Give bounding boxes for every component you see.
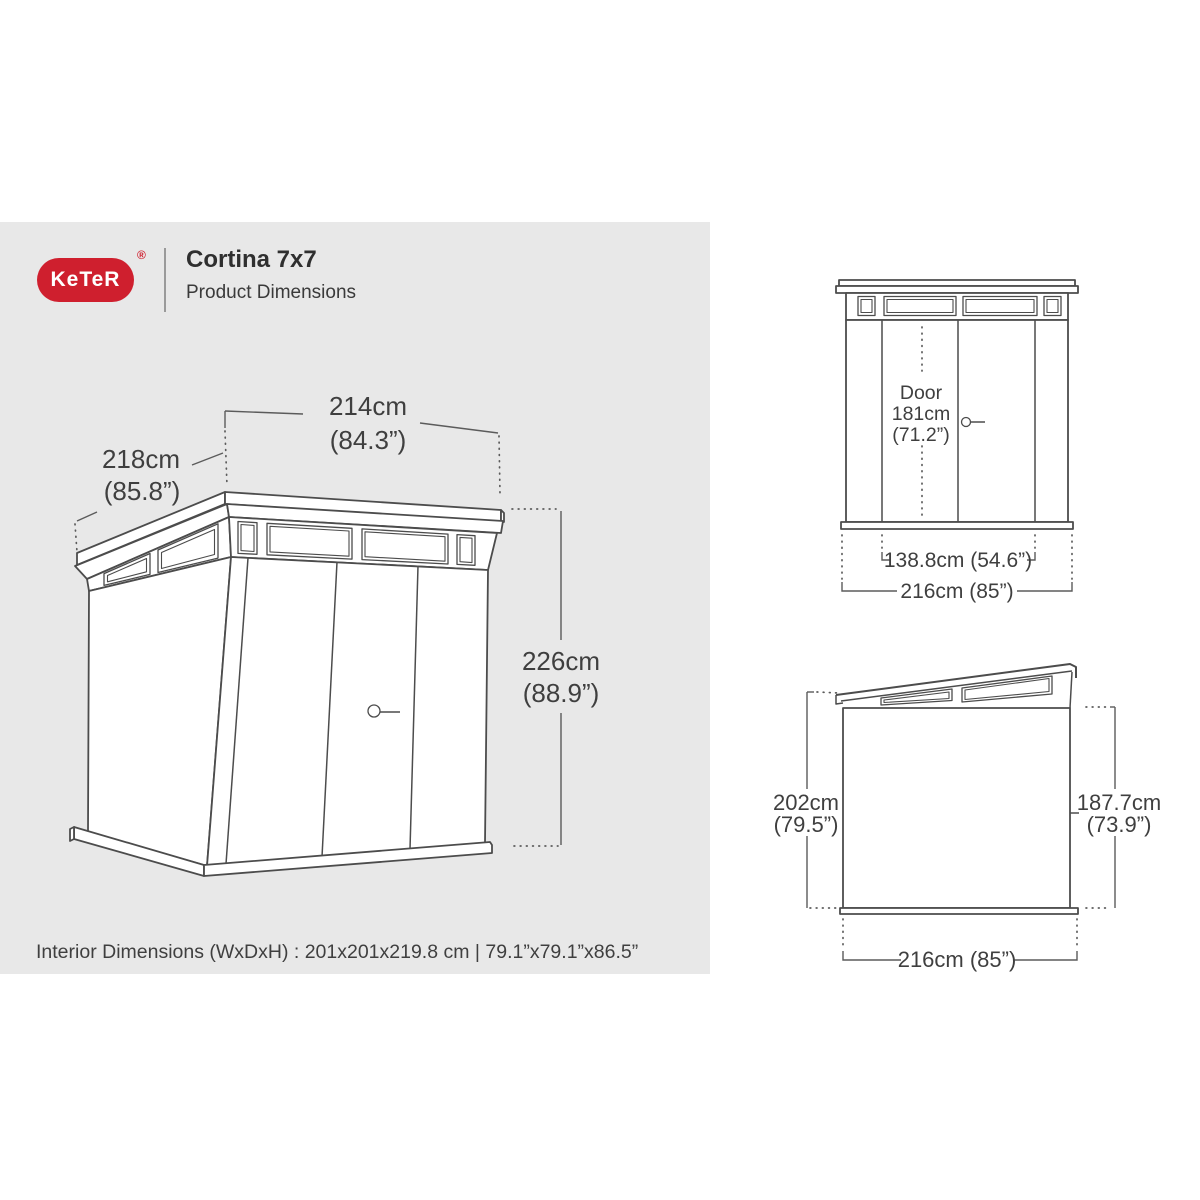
side-view-shape — [836, 664, 1079, 914]
iso-depth-cm-label: 218cm — [102, 444, 180, 474]
door-label: Door — [900, 382, 943, 404]
door-handle-icon — [368, 705, 380, 717]
door-width-label: 138.8cm (54.6”) — [884, 549, 1032, 572]
page-subtitle: Product Dimensions — [186, 282, 356, 304]
door-height-cm-label: 181cm — [892, 403, 951, 425]
side-rear-height-in-label: (79.5”) — [774, 812, 839, 837]
side-wall-height-in-label: (73.9”) — [1087, 812, 1152, 837]
isometric-shed-shape — [70, 492, 504, 876]
door-handle-icon — [962, 418, 971, 427]
isometric-shed-drawing: 214cm (84.3”) 218cm (85.8”) 226cm (88.9”… — [40, 385, 600, 885]
front-view-shape — [836, 280, 1078, 529]
front-view-drawing: Door 181cm (71.2”) 138.8cm (54.6”) 216cm… — [780, 265, 1110, 610]
door-height-in-label: (71.2”) — [892, 424, 949, 446]
brand-divider — [164, 248, 166, 312]
side-view-drawing: 202cm (79.5”) 187.7cm (73.9”) 216cm (85”… — [765, 650, 1195, 985]
iso-height-cm-label: 226cm — [522, 646, 600, 676]
side-depth-label: 216cm (85”) — [898, 947, 1017, 972]
iso-width-in-label: (84.3”) — [330, 425, 407, 455]
page-title: Cortina 7x7 — [186, 246, 317, 274]
keter-logo-text: KeTeR — [51, 268, 121, 292]
keter-logo: KeTeR — [37, 258, 134, 302]
page: KeTeR ® Cortina 7x7 Product Dimensions — [0, 0, 1200, 1200]
iso-height-in-label: (88.9”) — [523, 678, 600, 708]
iso-depth-in-label: (85.8”) — [104, 476, 181, 506]
interior-dimensions-note: Interior Dimensions (WxDxH) : 201x201x21… — [36, 941, 696, 964]
registered-trademark-icon: ® — [137, 248, 146, 262]
front-overall-width-label: 216cm (85”) — [900, 580, 1013, 603]
iso-width-cm-label: 214cm — [329, 391, 407, 421]
